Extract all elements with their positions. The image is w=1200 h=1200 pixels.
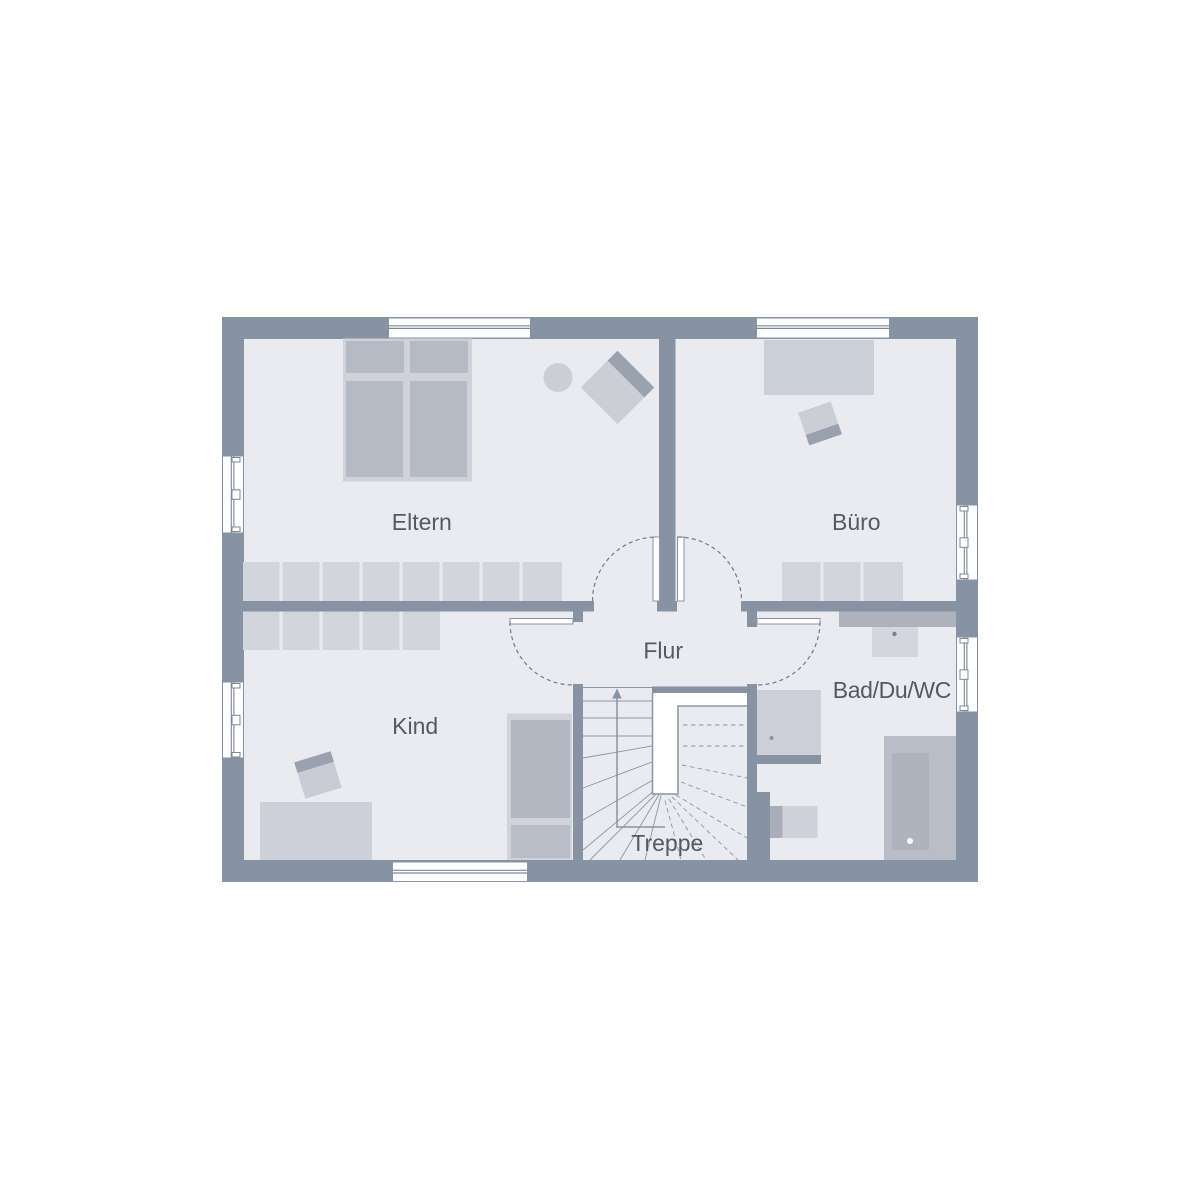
svg-text:Treppe: Treppe (631, 830, 703, 856)
svg-text:Kind: Kind (392, 713, 438, 739)
svg-text:Flur: Flur (643, 638, 683, 664)
svg-text:Büro: Büro (832, 509, 881, 535)
svg-text:Bad/Du/WC: Bad/Du/WC (833, 677, 951, 703)
svg-text:Eltern: Eltern (392, 509, 452, 535)
